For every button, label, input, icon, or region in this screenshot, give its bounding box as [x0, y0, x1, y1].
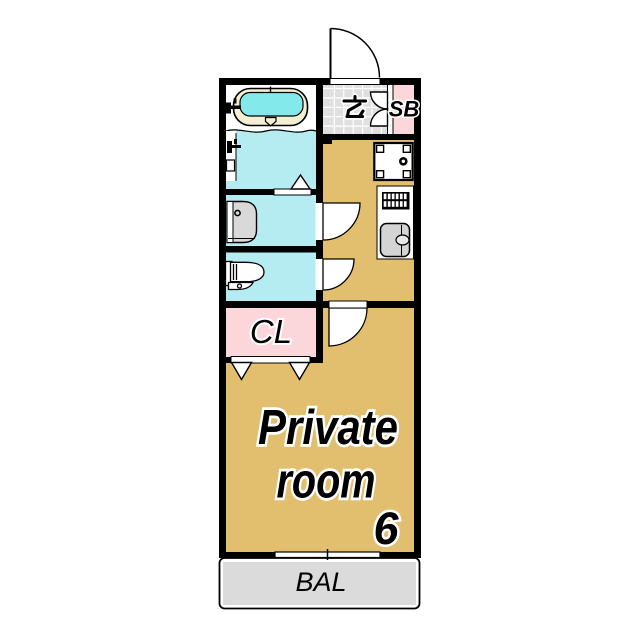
svg-text:Private: Private [258, 401, 398, 455]
svg-text:BAL: BAL [295, 567, 346, 597]
svg-text:room: room [277, 455, 376, 509]
svg-text:6: 6 [373, 503, 399, 554]
svg-text:SB: SB [389, 97, 420, 122]
svg-text:CL: CL [250, 313, 292, 350]
